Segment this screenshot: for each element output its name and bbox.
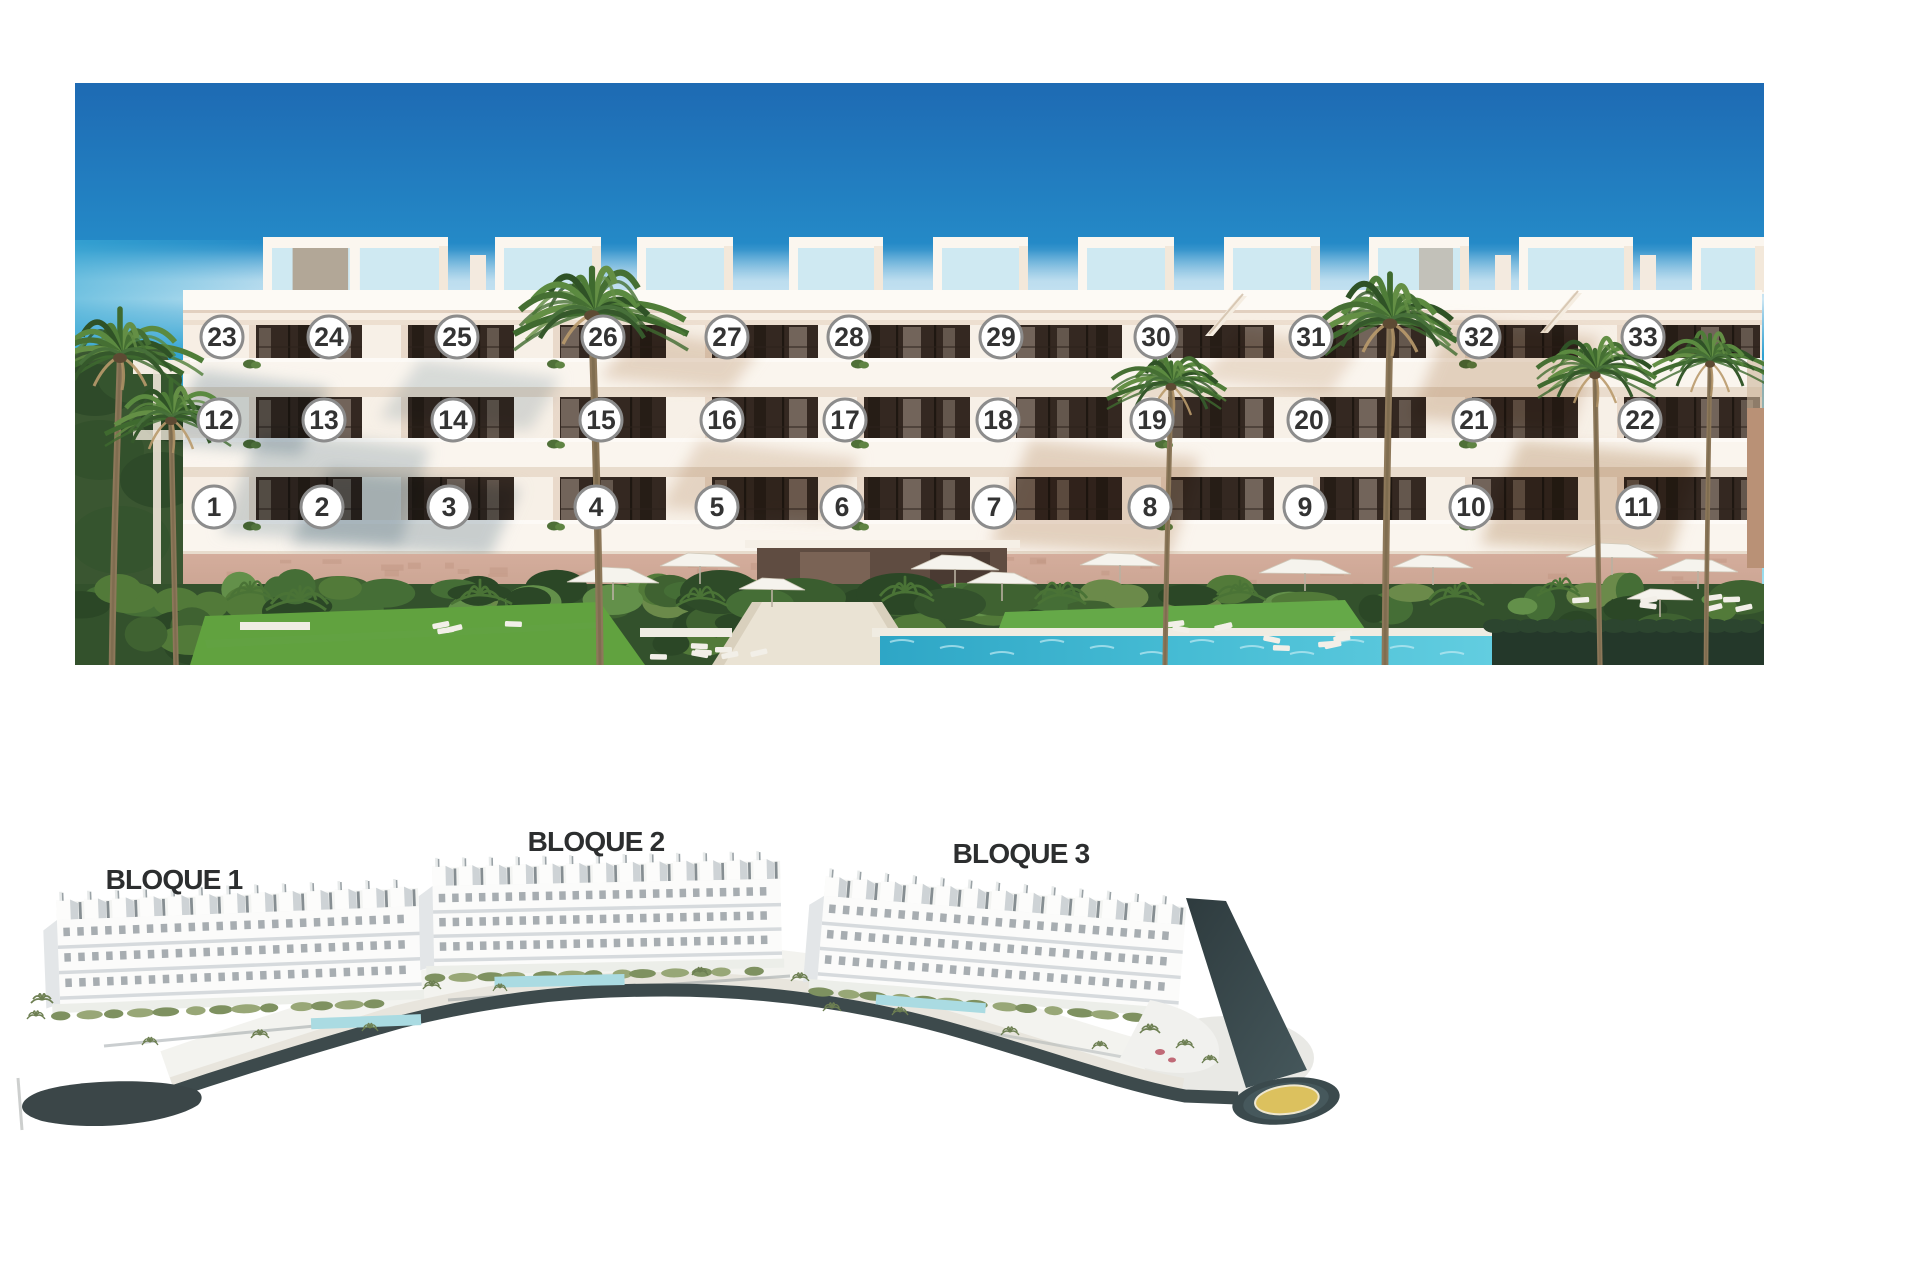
svg-text:12: 12 [204,405,233,435]
svg-text:30: 30 [1141,322,1170,352]
svg-text:22: 22 [1625,405,1654,435]
svg-text:9: 9 [1298,492,1313,522]
svg-text:6: 6 [835,492,850,522]
svg-text:7: 7 [987,492,1002,522]
svg-text:4: 4 [589,492,604,522]
svg-text:19: 19 [1137,405,1166,435]
svg-text:11: 11 [1624,492,1652,522]
svg-text:1: 1 [207,492,222,522]
svg-text:25: 25 [442,322,471,352]
svg-text:5: 5 [710,492,725,522]
svg-text:28: 28 [834,322,863,352]
svg-text:8: 8 [1143,492,1158,522]
svg-text:23: 23 [207,322,236,352]
svg-text:BLOQUE 1: BLOQUE 1 [106,864,243,895]
svg-text:32: 32 [1464,322,1493,352]
svg-text:17: 17 [830,405,859,435]
svg-text:21: 21 [1459,405,1488,435]
svg-text:26: 26 [588,322,617,352]
svg-text:13: 13 [309,405,338,435]
svg-text:20: 20 [1294,405,1323,435]
svg-text:15: 15 [586,405,615,435]
svg-text:16: 16 [707,405,736,435]
svg-text:3: 3 [442,492,457,522]
svg-text:10: 10 [1456,492,1485,522]
svg-text:29: 29 [986,322,1015,352]
svg-text:BLOQUE 3: BLOQUE 3 [953,838,1090,869]
svg-text:31: 31 [1296,322,1325,352]
svg-text:24: 24 [314,322,344,352]
svg-text:33: 33 [1628,322,1657,352]
svg-text:BLOQUE 2: BLOQUE 2 [528,826,665,857]
svg-text:27: 27 [712,322,741,352]
svg-text:2: 2 [315,492,330,522]
svg-text:18: 18 [983,405,1012,435]
svg-text:14: 14 [438,405,468,435]
